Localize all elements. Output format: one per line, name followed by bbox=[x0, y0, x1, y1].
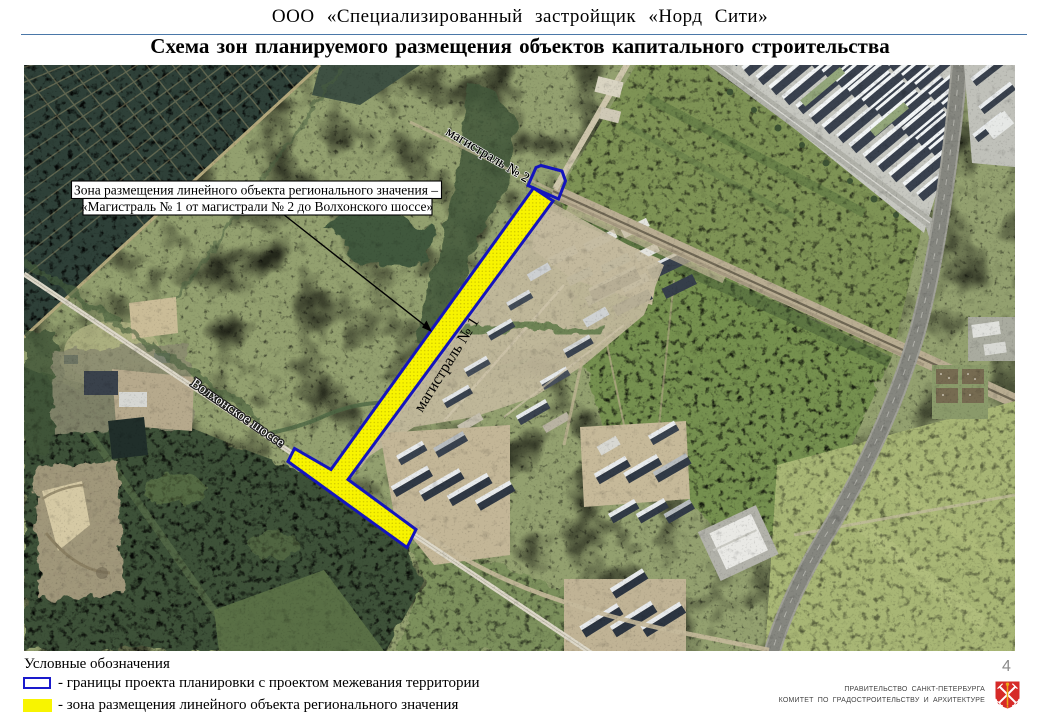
svg-text:Зона размещения линейного объе: Зона размещения линейного объекта регион… bbox=[74, 183, 438, 198]
svg-text:«Магистраль № 1 от магистрали: «Магистраль № 1 от магистрали № 2 до Вол… bbox=[81, 199, 434, 214]
